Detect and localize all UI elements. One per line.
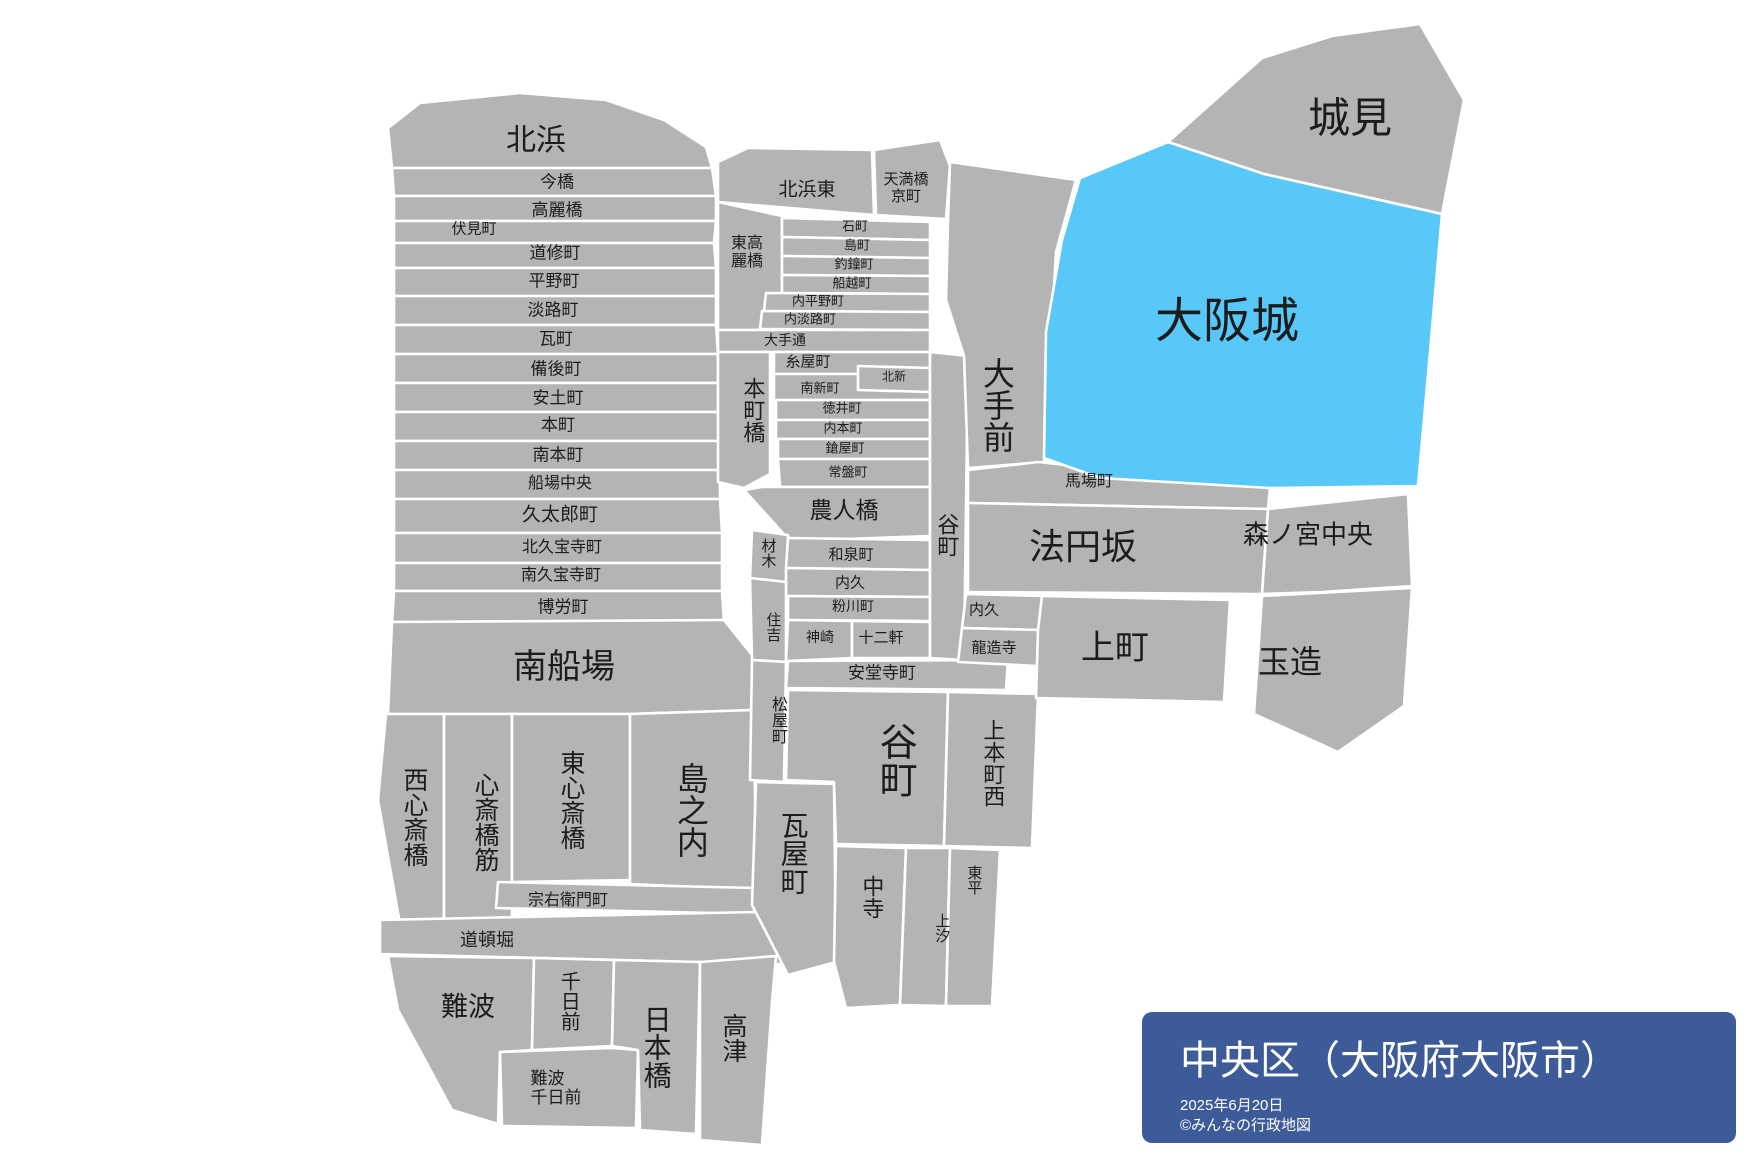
region-minamihommachi xyxy=(394,441,720,470)
region-koraibashi xyxy=(394,196,716,221)
region-doshomachi xyxy=(394,243,716,268)
region-tokuicho xyxy=(776,400,930,420)
region-bakuromachi xyxy=(392,591,724,622)
region-ryuzoji xyxy=(958,628,1040,666)
region-hiranomachi xyxy=(394,268,716,296)
region-kitakyuhojimachi xyxy=(394,533,722,563)
map-title: 中央区（大阪府大阪市） xyxy=(1180,1040,1736,1082)
title-card: 中央区（大阪府大阪市） 2025年6月20日 ©みんなの行政地図 xyxy=(1142,1012,1736,1143)
region-kawaramachi xyxy=(394,325,718,354)
region-minamikyuhojimachi xyxy=(394,563,722,591)
region-tsuriganecho xyxy=(782,256,930,276)
region-sembachuo xyxy=(394,470,720,499)
region-azuchimachi xyxy=(394,383,718,412)
region-hommachibashi xyxy=(718,352,770,488)
region-imabashi xyxy=(392,168,716,196)
region-hoenzaka xyxy=(968,503,1268,594)
region-higashishinsaibashi xyxy=(512,714,630,882)
region-uchikyu-east xyxy=(962,594,1042,630)
region-shimanouchi xyxy=(630,710,756,890)
region-kokawacho xyxy=(788,596,930,621)
region-tohei xyxy=(946,848,1000,1006)
region-otedori xyxy=(718,330,930,352)
region-nakadera xyxy=(834,846,906,1008)
region-uemachi xyxy=(1036,596,1230,702)
region-fushimimachi xyxy=(394,221,716,243)
region-awajimachi xyxy=(394,296,716,325)
region-matsuyamachi xyxy=(750,660,786,782)
region-andojimachi xyxy=(786,660,1008,690)
region-uchihiranomachi xyxy=(764,293,930,312)
region-soemoncho xyxy=(496,882,756,914)
region-yariyamachi xyxy=(778,439,930,459)
region-temmabashikyomachi xyxy=(874,140,950,219)
region-junikken xyxy=(852,621,930,658)
region-nishishinsaibashi xyxy=(378,714,444,930)
region-kitahama xyxy=(388,93,712,168)
region-funakoshimachi xyxy=(782,275,930,294)
region-morinomiyachuo xyxy=(1262,494,1412,594)
region-uchihommachi xyxy=(776,420,930,439)
region-izumimachi xyxy=(786,538,930,570)
region-uchikyu-west xyxy=(786,568,930,597)
region-kitashin xyxy=(858,366,930,392)
map-credit: ©みんなの行政地図 xyxy=(1180,1116,1736,1136)
region-kyutaromachi xyxy=(394,499,722,533)
region-bingomachi xyxy=(394,354,718,383)
ward-map-canvas: 北浜 今橋 高麗橋 伏見町 道修町 平野町 淡路町 瓦町 備後町 安土町 本町 … xyxy=(0,0,1760,1170)
region-ueshio xyxy=(900,848,950,1006)
region-tamatsukuri xyxy=(1254,588,1412,752)
region-kanzaki xyxy=(786,620,852,661)
region-tanimachi-north xyxy=(930,352,968,660)
region-minamisemba xyxy=(388,620,756,714)
region-tokiwamachi xyxy=(778,459,930,487)
map-date: 2025年6月20日 xyxy=(1180,1096,1736,1116)
district-map xyxy=(0,0,1760,1170)
region-nambasennichimae xyxy=(500,1048,638,1128)
region-uchiawajimachi xyxy=(760,311,930,330)
region-zaimoku xyxy=(750,530,788,582)
region-kitahamahigashi xyxy=(718,148,874,215)
region-sennichimae xyxy=(532,958,614,1050)
region-shimamachi xyxy=(782,237,930,258)
region-kozu xyxy=(700,956,776,1145)
region-sumiyoshi xyxy=(750,578,786,662)
region-uehommachinishi xyxy=(944,692,1038,848)
region-hommachi xyxy=(394,412,720,441)
